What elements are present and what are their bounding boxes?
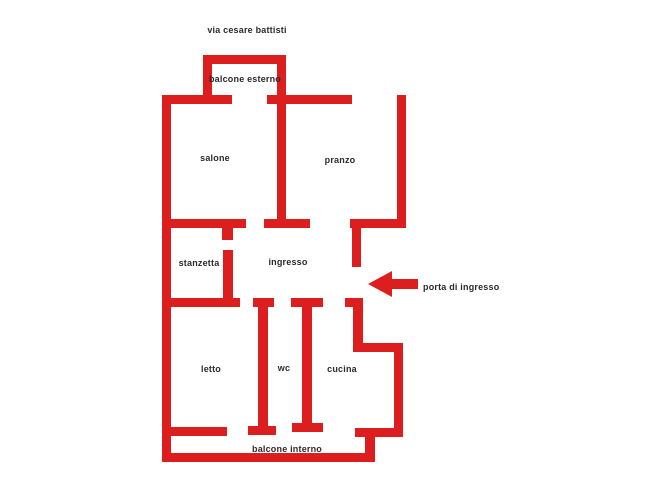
wall-top-wall-right-segment: [267, 95, 352, 104]
wall-stanzetta-top-wall: [171, 219, 246, 228]
room-label-ingresso: ingresso: [268, 257, 307, 267]
wall-pranzo-bottom-cap: [264, 219, 310, 228]
wall-cucina-bottom-wall: [355, 428, 403, 437]
wall-wc-left-wall: [258, 298, 268, 435]
wall-wc-right-wall-bottom-cap: [292, 423, 323, 432]
room-label-salone: salone: [200, 153, 230, 163]
wall-wc-left-wall-bottom-cap: [248, 426, 276, 435]
street-name-label: via cesare battisti: [207, 25, 286, 35]
wall-letto-bottom-wall: [171, 427, 227, 436]
wall-ingresso-right-horizontal: [350, 219, 406, 228]
wall-wc-right-wall: [302, 298, 312, 432]
wall-letto-top-wall: [171, 298, 240, 307]
wall-balcone-interno-bottom: [162, 453, 375, 462]
wall-balcone-esterno-top: [203, 55, 286, 64]
room-label-pranzo: pranzo: [325, 155, 356, 165]
room-label-wc: wc: [278, 363, 290, 373]
wall-cucina-right-wall: [394, 343, 403, 437]
wall-stanzetta-door-jamb: [222, 228, 233, 240]
room-label-cucina: cucina: [327, 364, 357, 374]
room-label-stanzetta: stanzetta: [179, 258, 220, 268]
entrance-door-arrow-icon: [367, 270, 419, 303]
wall-left-outer-wall: [162, 95, 171, 462]
room-label-balcone-interno: balcone interno: [252, 444, 322, 454]
wall-right-outer-wall-top: [397, 95, 406, 228]
room-label-balcone-esterno: balcone esterno: [209, 74, 281, 84]
wall-top-wall-left-segment: [162, 95, 232, 104]
room-label-letto: letto: [201, 364, 221, 374]
floorplan-canvas: via cesare battisti balcone esternosalon…: [0, 0, 648, 492]
wall-ingresso-right-vertical: [352, 228, 361, 267]
entrance-door-label: porta di ingresso: [423, 282, 499, 292]
